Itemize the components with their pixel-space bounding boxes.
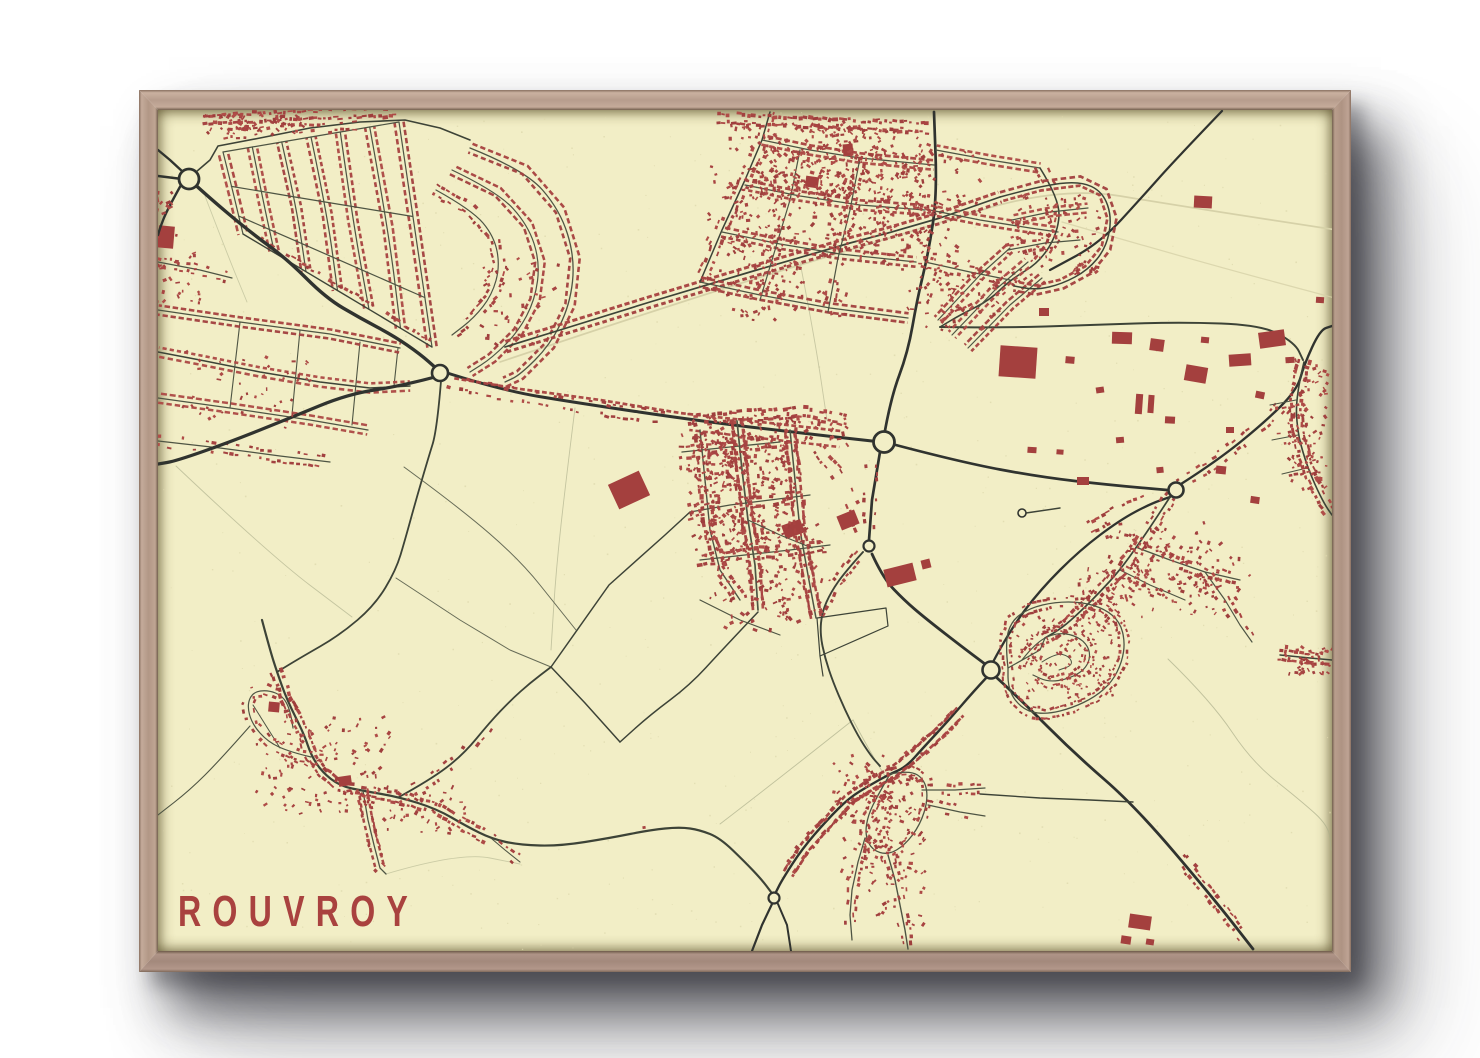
svg-text:ROUVROY: ROUVROY — [178, 887, 419, 936]
